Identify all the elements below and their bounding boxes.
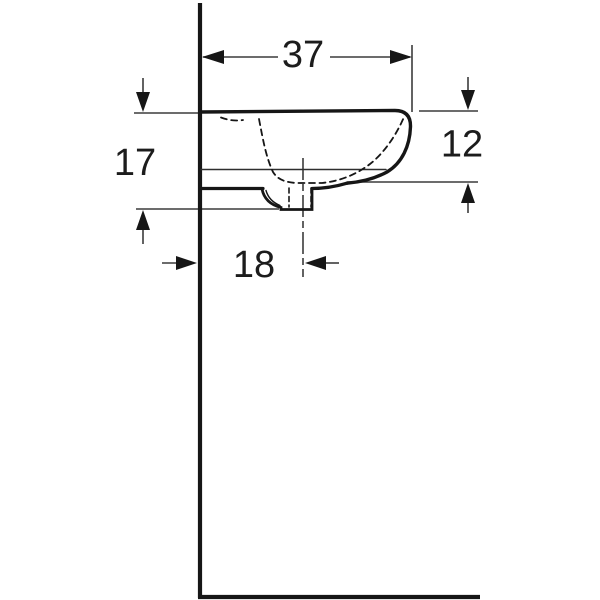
- dimension-arrowheads: [136, 50, 475, 270]
- dim-18-arrow-right-icon: [176, 256, 197, 270]
- basin-back-ledge-dashed: [221, 118, 243, 121]
- basin-side-view-technical-drawing: 37 17 12 18: [0, 0, 600, 600]
- dim-17-label: 17: [114, 142, 156, 184]
- dimension-lines: [134, 45, 478, 277]
- building-lines: [198, 3, 480, 598]
- dim-37-arrow-left-icon: [202, 50, 224, 64]
- drain-outlet: [262, 189, 312, 210]
- basin-underside-right: [312, 183, 347, 188]
- dim-12-arrow-up-icon: [461, 183, 475, 203]
- basin-profile: [200, 111, 411, 210]
- dim-17-arrow-down-icon: [136, 92, 150, 112]
- dim-18-label: 18: [233, 244, 275, 286]
- dim-12-arrow-down-icon: [461, 90, 475, 110]
- drawing-canvas: 37 17 12 18: [0, 0, 600, 600]
- dim-18-arrow-left-icon: [305, 256, 326, 270]
- dim-12-label: 12: [441, 124, 483, 166]
- dim-17-arrow-up-icon: [136, 210, 150, 230]
- dim-37-arrow-right-icon: [390, 50, 412, 64]
- dim-37-label: 37: [282, 34, 324, 76]
- dimension-labels: 37 17 12 18: [114, 34, 483, 286]
- basin-outline: [200, 111, 411, 184]
